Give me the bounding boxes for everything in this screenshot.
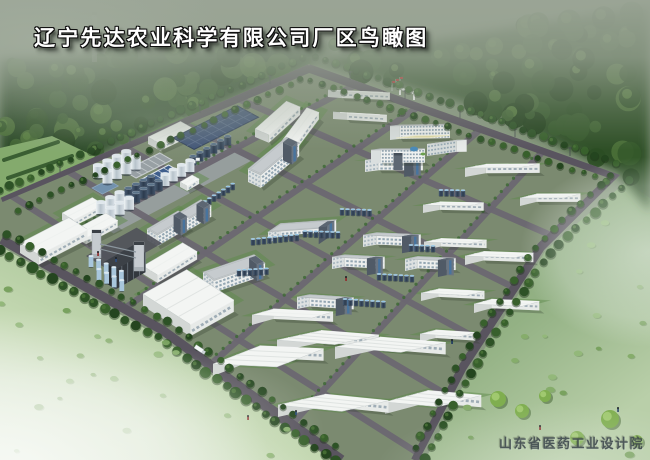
watermark: 山东省医药工业设计院 (499, 433, 644, 452)
aerial-rendering: 辽宁先达农业科学有限公司厂区鸟瞰图 山东省医药工业设计院 (0, 0, 650, 460)
page-title: 辽宁先达农业科学有限公司厂区鸟瞰图 (34, 22, 428, 52)
scene-svg (0, 0, 650, 460)
